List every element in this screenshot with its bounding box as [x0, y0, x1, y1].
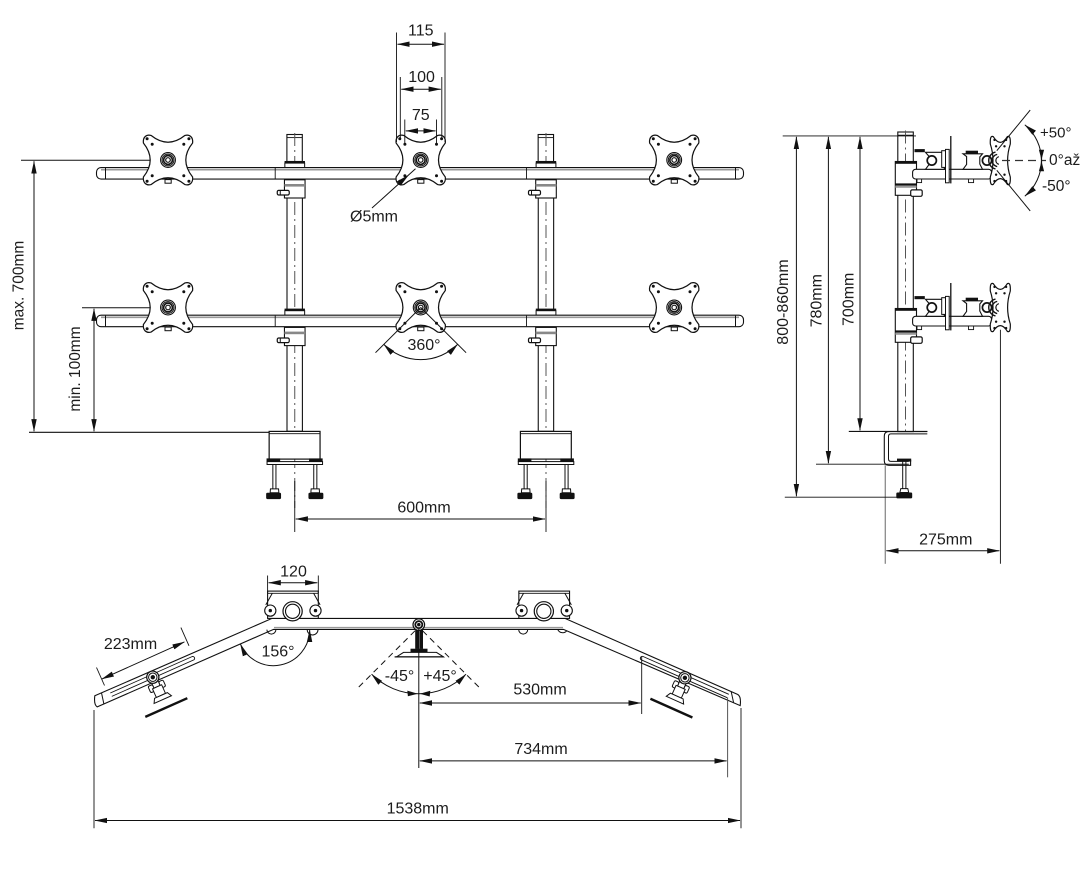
svg-text:-50°: -50°: [1042, 178, 1071, 195]
svg-text:min. 100mm: min. 100mm: [67, 326, 84, 411]
svg-text:Ø5mm: Ø5mm: [350, 209, 398, 226]
svg-text:0°až: 0°až: [1049, 152, 1080, 169]
svg-text:-45°: -45°: [385, 668, 415, 685]
svg-text:100: 100: [408, 69, 435, 86]
svg-text:800-860mm: 800-860mm: [775, 259, 792, 344]
svg-text:75: 75: [412, 107, 430, 124]
svg-text:1538mm: 1538mm: [387, 801, 449, 818]
svg-text:120: 120: [280, 564, 307, 581]
svg-text:275mm: 275mm: [919, 532, 972, 549]
svg-text:780mm: 780mm: [809, 274, 826, 327]
svg-text:700mm: 700mm: [841, 273, 858, 326]
svg-text:223mm: 223mm: [104, 636, 157, 653]
svg-text:+50°: +50°: [1040, 125, 1071, 142]
svg-text:+45°: +45°: [423, 668, 457, 685]
svg-text:734mm: 734mm: [514, 741, 567, 758]
svg-text:115: 115: [408, 22, 434, 39]
svg-text:max. 700mm: max. 700mm: [11, 241, 28, 331]
svg-text:360°: 360°: [407, 337, 440, 354]
svg-text:156°: 156°: [261, 644, 294, 661]
svg-text:600mm: 600mm: [397, 500, 450, 517]
svg-text:530mm: 530mm: [513, 682, 566, 699]
